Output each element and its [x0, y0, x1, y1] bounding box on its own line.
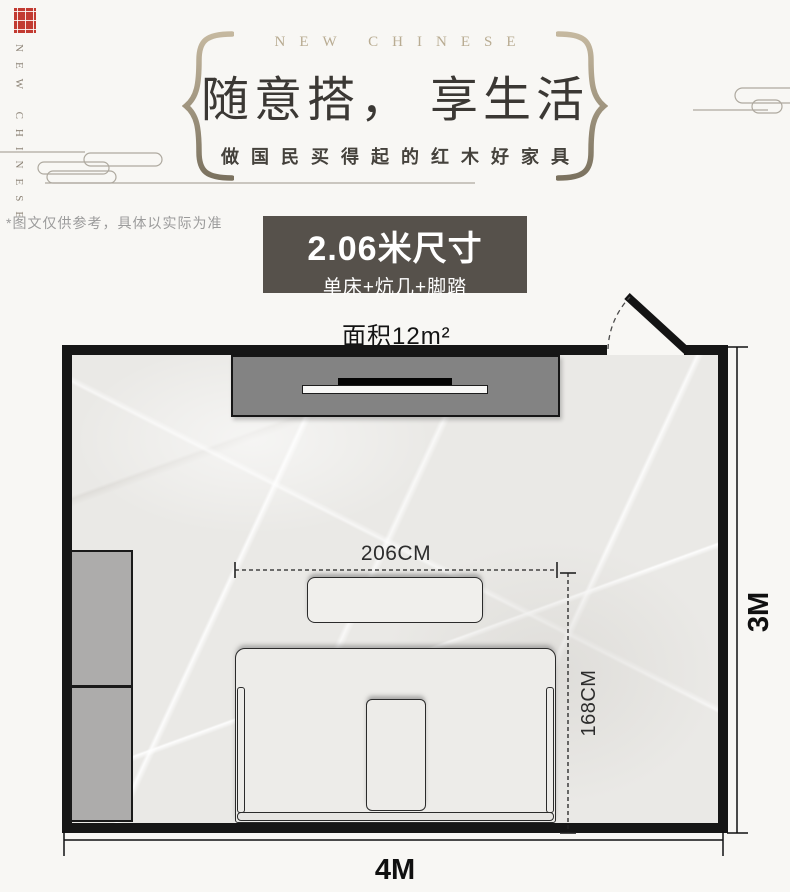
brand-seal-icon: [14, 8, 36, 33]
door-swing-arc: [608, 297, 630, 349]
bed-rail-left: [237, 687, 245, 813]
wardrobe: [70, 550, 133, 822]
wall-top: [62, 345, 607, 355]
wall-bottom: [62, 823, 728, 833]
disclaimer-note: *图文仅供参考，具体以实际为准: [6, 213, 222, 233]
spec-card: 2.06米尺寸 单床+炕几+脚踏: [263, 216, 527, 293]
product-detail-poster: { "brand": { "vertical_text": "NEW CHINE…: [0, 0, 790, 892]
footstool: [366, 699, 426, 811]
wardrobe-divider: [72, 685, 131, 688]
door-leaf-icon: [627, 296, 688, 352]
floorplan-room: [62, 345, 728, 833]
wall-right: [718, 345, 728, 833]
spec-combo-subtitle: 单床+炕几+脚踏: [263, 272, 527, 299]
bed-depth-dimension-label: 168CM: [578, 643, 600, 763]
kang-table: [307, 577, 483, 623]
room-height-dimension-label: 3M: [743, 567, 773, 657]
tv-stand-shelf: [302, 385, 488, 394]
hero-eyebrow: NEW CHINESE: [0, 34, 790, 51]
tv-cabinet: [231, 355, 560, 417]
bed-width-dimension-label: 206CM: [235, 542, 557, 566]
hero-subtitle: 做国民买得起的红木好家具: [0, 143, 790, 169]
page-title: 随意搭， 享生活: [0, 60, 790, 130]
single-bed: [235, 648, 556, 823]
spec-size-title: 2.06米尺寸: [263, 221, 527, 270]
bed-rail-right: [546, 687, 554, 813]
bed-footboard: [237, 812, 554, 821]
room-width-dimension-label: 4M: [300, 854, 490, 887]
